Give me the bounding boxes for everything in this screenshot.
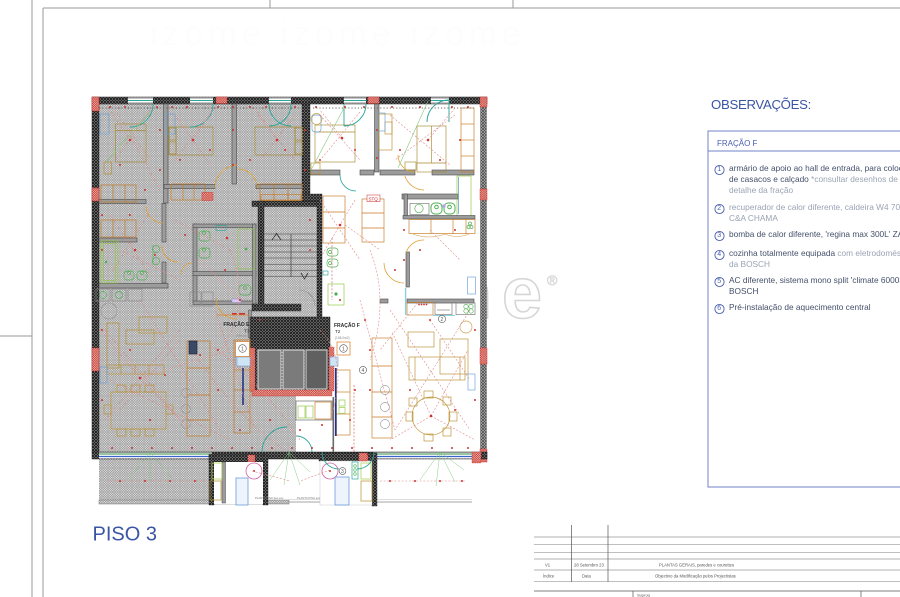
svg-text:(194,6m2): (194,6m2) bbox=[236, 334, 250, 338]
svg-text:de casacos e calçado *consult: de casacos e calçado *consultar desenhos… bbox=[729, 174, 898, 184]
svg-text:izome izome izome: izome izome izome bbox=[150, 15, 526, 53]
svg-text:C&A CHAMA: C&A CHAMA bbox=[729, 213, 778, 223]
svg-text:2: 2 bbox=[441, 317, 444, 323]
svg-text:T2: T2 bbox=[335, 329, 341, 334]
svg-text:Índice: Índice bbox=[543, 574, 555, 579]
svg-text:OBSERVAÇÕES:: OBSERVAÇÕES: bbox=[711, 97, 811, 112]
svg-text:FRAÇÃO E: FRAÇÃO E bbox=[223, 321, 250, 328]
svg-text:Pré-instalação de aquecimento: Pré-instalação de aquecimento central bbox=[729, 302, 871, 312]
svg-text:2: 2 bbox=[717, 205, 721, 212]
svg-text:FRAÇÃO F: FRAÇÃO F bbox=[717, 139, 758, 148]
svg-text:3: 3 bbox=[341, 469, 344, 475]
svg-text:PLANTA PISO esc: PLANTA PISO esc bbox=[297, 496, 321, 500]
svg-text:3: 3 bbox=[717, 232, 721, 239]
svg-text:1: 1 bbox=[342, 347, 345, 353]
svg-text:detalhe da fração: detalhe da fração bbox=[729, 185, 794, 195]
svg-text:cozinha totalmente equipada co: cozinha totalmente equipada com eletrodo… bbox=[729, 248, 900, 258]
svg-text:recuperador de calor diferente: recuperador de calor diferente, caldeira… bbox=[729, 202, 900, 212]
svg-text:4: 4 bbox=[717, 251, 721, 258]
svg-text:5: 5 bbox=[717, 278, 721, 285]
svg-text:Suprog: Suprog bbox=[637, 593, 650, 597]
svg-text:da BOSCH: da BOSCH bbox=[729, 259, 770, 269]
svg-text:28 Setembro 23: 28 Setembro 23 bbox=[574, 563, 604, 568]
svg-text:(108,0m2): (108,0m2) bbox=[335, 336, 350, 340]
svg-text:FRAÇÃO F: FRAÇÃO F bbox=[334, 322, 360, 329]
svg-text:PLANTA PISO tipo esc: PLANTA PISO tipo esc bbox=[255, 496, 284, 500]
svg-text:Objectivo da Modificação pelos: Objectivo da Modificação pelos Projectis… bbox=[655, 574, 736, 579]
svg-text:6: 6 bbox=[717, 305, 721, 312]
svg-text:BOSCH: BOSCH bbox=[729, 286, 759, 296]
svg-text:4: 4 bbox=[362, 368, 365, 374]
svg-text:V1: V1 bbox=[545, 563, 551, 568]
svg-text:PISO 3: PISO 3 bbox=[93, 524, 157, 546]
svg-text:PLANTAS GERAIS, paredes e cour: PLANTAS GERAIS, paredes e courettes bbox=[659, 563, 734, 568]
svg-text:1: 1 bbox=[241, 347, 244, 353]
svg-text:1: 1 bbox=[717, 166, 721, 173]
svg-text:armário de apoio ao hall de en: armário de apoio ao hall de entrada, par… bbox=[729, 163, 900, 173]
svg-text:®: ® bbox=[547, 272, 558, 288]
svg-text:AC diferente, sistema mono spl: AC diferente, sistema mono split 'climat… bbox=[729, 275, 900, 285]
svg-text:STQ: STQ bbox=[369, 196, 379, 201]
svg-text:Data: Data bbox=[582, 574, 592, 579]
svg-text:bomba de calor diferente, 'reg: bomba de calor diferente, 'regina max 30… bbox=[729, 229, 900, 239]
